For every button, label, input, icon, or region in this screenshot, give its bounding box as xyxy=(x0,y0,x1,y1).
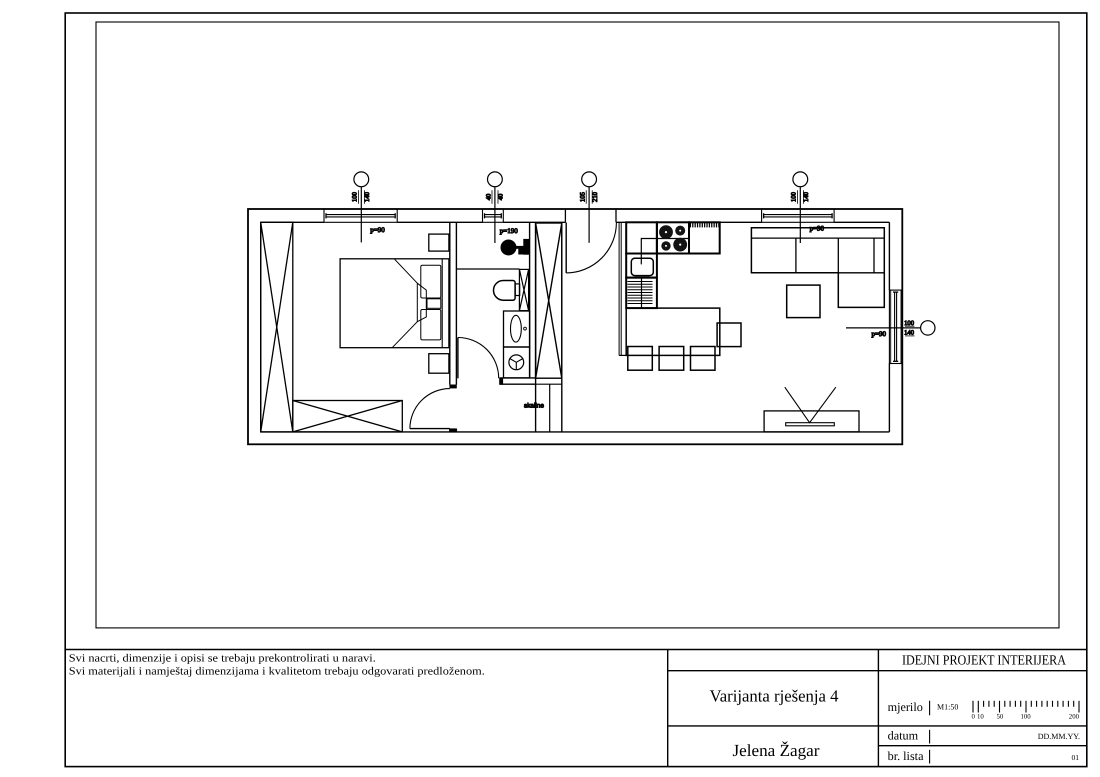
svg-text:p=90: p=90 xyxy=(872,330,887,338)
svg-text:140: 140 xyxy=(364,191,371,202)
svg-text:p=90: p=90 xyxy=(810,225,825,233)
svg-text:210: 210 xyxy=(592,191,599,202)
svg-text:mjerilo: mjerilo xyxy=(888,700,923,714)
svg-text:Svi materijali i namještaj dim: Svi materijali i namještaj dimenzijama i… xyxy=(69,665,485,677)
svg-text:140: 140 xyxy=(904,330,915,337)
svg-text:40: 40 xyxy=(498,193,505,200)
svg-text:DD.MM.YY.: DD.MM.YY. xyxy=(1038,732,1080,741)
svg-text:Varijanta rješenja 4: Varijanta rješenja 4 xyxy=(710,686,839,705)
svg-text:100: 100 xyxy=(904,320,915,327)
svg-text:50: 50 xyxy=(997,714,1004,721)
svg-text:datum: datum xyxy=(888,728,919,742)
svg-text:100: 100 xyxy=(791,191,798,202)
svg-text:M1:50: M1:50 xyxy=(937,703,958,712)
svg-text:40: 40 xyxy=(485,193,492,200)
svg-text:100: 100 xyxy=(1021,714,1032,721)
svg-text:skaline: skaline xyxy=(524,403,544,410)
svg-text:0: 0 xyxy=(972,714,976,721)
svg-text:100: 100 xyxy=(352,191,359,202)
svg-text:p=90: p=90 xyxy=(370,226,385,234)
svg-text:105: 105 xyxy=(580,191,587,202)
svg-text:140: 140 xyxy=(803,191,810,202)
svg-text:10: 10 xyxy=(977,714,984,721)
svg-text:01: 01 xyxy=(1072,753,1080,762)
svg-text:Svi nacrti, dimenzije i opisi: Svi nacrti, dimenzije i opisi se trebaju… xyxy=(69,653,376,665)
svg-text:Jelena Žagar: Jelena Žagar xyxy=(733,741,820,760)
svg-text:IDEJNI PROJEKT INTERIJERA: IDEJNI PROJEKT INTERIJERA xyxy=(902,653,1067,668)
svg-text:200: 200 xyxy=(1069,714,1080,721)
svg-text:br. lista: br. lista xyxy=(888,749,924,763)
svg-text:p=190: p=190 xyxy=(500,227,518,235)
